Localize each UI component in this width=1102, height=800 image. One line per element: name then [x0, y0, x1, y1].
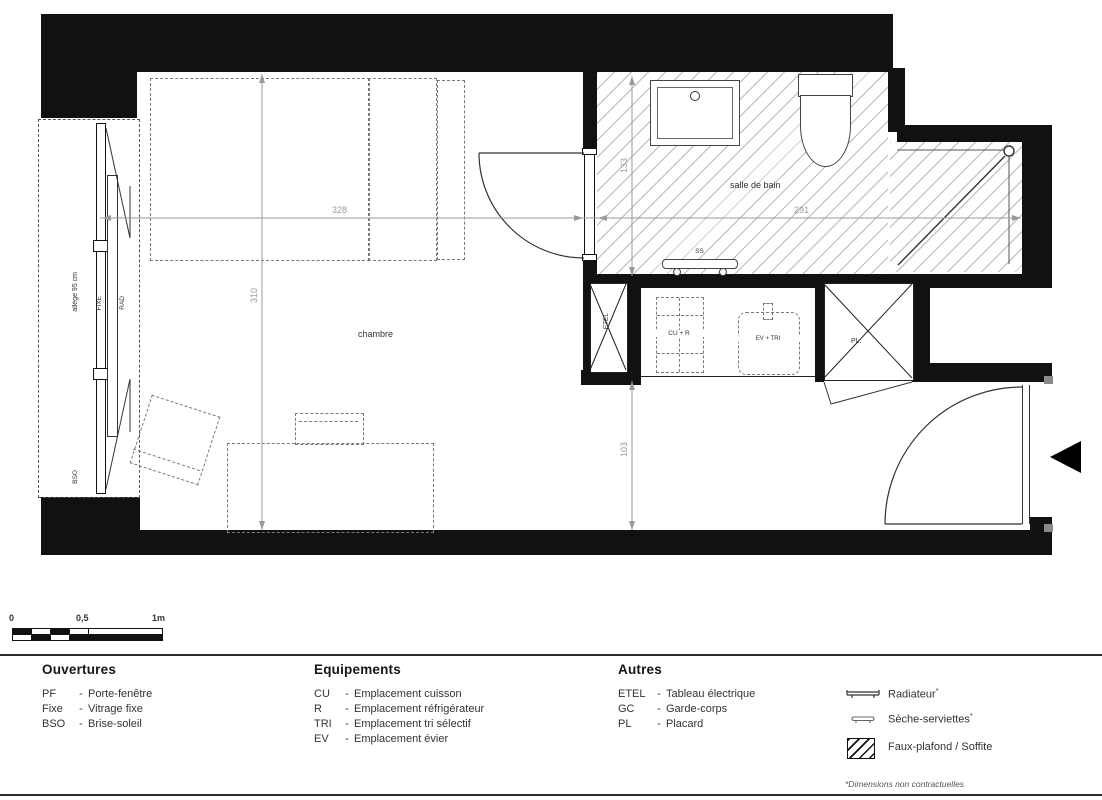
label: Emplacement tri sélectif [354, 718, 471, 730]
abbr: Fixe [42, 703, 74, 715]
dash: - [652, 718, 666, 730]
dash: - [340, 688, 354, 700]
scale-tick-1m: 1m [152, 613, 165, 623]
legend-openings-item: PF - Porte-fenêtre [42, 688, 152, 700]
label: Garde-corps [666, 703, 727, 715]
legend-openings-title: Ouvertures [42, 662, 116, 677]
legend-others-title: Autres [618, 662, 662, 677]
abbr: PL [618, 718, 652, 730]
legend-equipment-item: TRI - Emplacement tri sélectif [314, 718, 471, 730]
note-mark: * [936, 688, 939, 695]
dash: - [340, 718, 354, 730]
label: Tableau électrique [666, 688, 755, 700]
towel-dryer-symbol-label: Sèche-serviettes* [888, 713, 973, 726]
label: Emplacement cuisson [354, 688, 462, 700]
abbr: GC [618, 703, 652, 715]
scale-cell [31, 634, 51, 641]
window-swing-bottom [106, 379, 130, 489]
dash: - [74, 703, 88, 715]
scale-tick-half: 0,5 [76, 613, 89, 623]
scale-bar: 0 0,5 1m [0, 610, 220, 650]
dimension-lines [100, 74, 1021, 530]
radiator-glyph [845, 688, 881, 700]
dim-bathroom-width: 291 [794, 205, 809, 215]
legend-equipment-item: CU - Emplacement cuisson [314, 688, 462, 700]
abbr: ETEL [618, 688, 652, 700]
legend-others-item: GC - Garde-corps [618, 703, 727, 715]
dim-entry-depth: 103 [619, 442, 629, 457]
closet-door-lines [824, 382, 912, 404]
legend-footnote: *Dimensions non contractuelles [845, 779, 964, 789]
dash: - [652, 703, 666, 715]
scale-cell [69, 634, 89, 641]
note-mark: * [970, 713, 973, 720]
shower-tray [897, 146, 1014, 265]
legend-others-item: PL - Placard [618, 718, 703, 730]
footer-top-divider [0, 654, 1102, 656]
dim-bedroom-depth: 310 [249, 288, 259, 303]
abbr: R [314, 703, 340, 715]
window-swing-top [106, 128, 130, 238]
scale-cell [88, 634, 163, 641]
legend-equipment-item: R - Emplacement réfrigérateur [314, 703, 484, 715]
scale-cell [50, 634, 70, 641]
scale-cell [12, 634, 32, 641]
closet-cross-icon [824, 284, 912, 378]
abbr: CU [314, 688, 340, 700]
etel-cross-icon [590, 284, 626, 370]
label: Sèche-serviettes [888, 714, 970, 726]
dash: - [74, 718, 88, 730]
radiator-symbol-label: Radiateur* [888, 688, 938, 701]
dash: - [652, 688, 666, 700]
label: Emplacement réfrigérateur [354, 703, 484, 715]
false-ceiling-icon [847, 738, 875, 759]
abbr: BSO [42, 718, 74, 730]
legend-openings-item: Fixe - Vitrage fixe [42, 703, 143, 715]
dash: - [74, 688, 88, 700]
abbr: TRI [314, 718, 340, 730]
dim-bedroom-width: 328 [332, 205, 347, 215]
dash: - [340, 733, 354, 745]
label: Placard [666, 718, 703, 730]
label: Faux-plafond / Soffite [888, 741, 992, 753]
dash: - [340, 703, 354, 715]
legend-openings-item: BSO - Brise-soleil [42, 718, 142, 730]
bath-door-swing [479, 153, 584, 258]
footer-bottom-divider [0, 794, 1102, 796]
abbr: PF [42, 688, 74, 700]
label: Porte-fenêtre [88, 688, 152, 700]
label: Vitrage fixe [88, 703, 143, 715]
dimension-arrowheads [102, 74, 1021, 530]
abbr: EV [314, 733, 340, 745]
legend-equipment-item: EV - Emplacement évier [314, 733, 448, 745]
legend-others-item: ETEL - Tableau électrique [618, 688, 755, 700]
dim-bathroom-depth: 133 [619, 158, 629, 173]
legend-equipment-title: Equipements [314, 662, 401, 677]
floor-plan-sheet: allège 95 cm FIXE RAD BSO chambre salle … [0, 0, 1102, 800]
label: Radiateur [888, 689, 936, 701]
plan-linework [0, 0, 1102, 610]
label: Emplacement évier [354, 733, 448, 745]
scale-tick-0: 0 [9, 613, 14, 623]
false-ceiling-symbol-label: Faux-plafond / Soffite [888, 741, 992, 753]
label: Brise-soleil [88, 718, 142, 730]
towel-dryer-glyph [850, 715, 876, 725]
entry-door-swing [885, 387, 1022, 524]
